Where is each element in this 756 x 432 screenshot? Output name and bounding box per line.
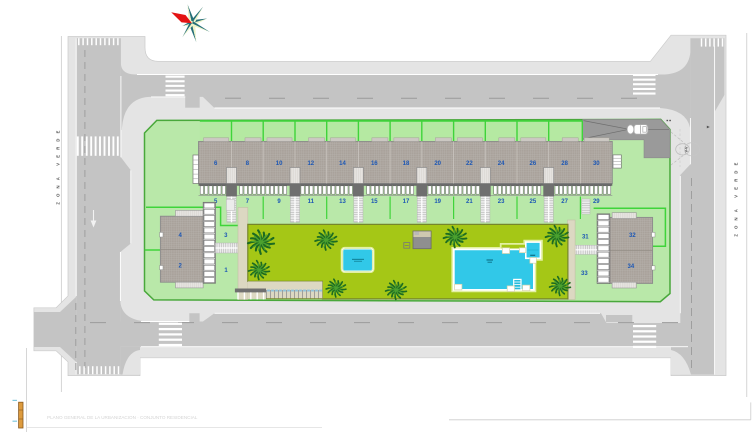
svg-text:22: 22	[466, 161, 473, 167]
svg-text:30: 30	[593, 161, 600, 167]
svg-text:21: 21	[466, 199, 473, 205]
svg-text:28: 28	[561, 161, 568, 167]
svg-text:23: 23	[498, 199, 505, 205]
svg-text:24: 24	[498, 161, 505, 167]
svg-text:32: 32	[629, 233, 636, 239]
svg-text:ZONA VERDE: ZONA VERDE	[734, 157, 739, 236]
svg-text:25: 25	[530, 199, 537, 205]
svg-text:10: 10	[276, 161, 283, 167]
svg-text:14: 14	[339, 161, 346, 167]
svg-text:11: 11	[308, 199, 315, 205]
svg-text:V-V: V-V	[685, 146, 689, 152]
svg-text:29: 29	[593, 199, 600, 205]
svg-text:16: 16	[371, 161, 378, 167]
svg-text:19: 19	[434, 199, 441, 205]
svg-text:26: 26	[530, 161, 537, 167]
svg-text:PLANO GENERAL DE LA URBANIZACI: PLANO GENERAL DE LA URBANIZACION · CONJU…	[47, 415, 198, 420]
svg-text:34: 34	[628, 264, 635, 270]
svg-text:33: 33	[581, 271, 588, 277]
svg-text:13: 13	[339, 199, 346, 205]
svg-text:31: 31	[582, 234, 589, 240]
svg-text:12: 12	[307, 161, 314, 167]
svg-text:15: 15	[371, 199, 378, 205]
svg-text:18: 18	[403, 161, 410, 167]
svg-text:ZONA VERDE: ZONA VERDE	[56, 125, 61, 204]
svg-text:27: 27	[561, 199, 568, 205]
svg-text:20: 20	[434, 161, 441, 167]
svg-text:17: 17	[403, 199, 410, 205]
